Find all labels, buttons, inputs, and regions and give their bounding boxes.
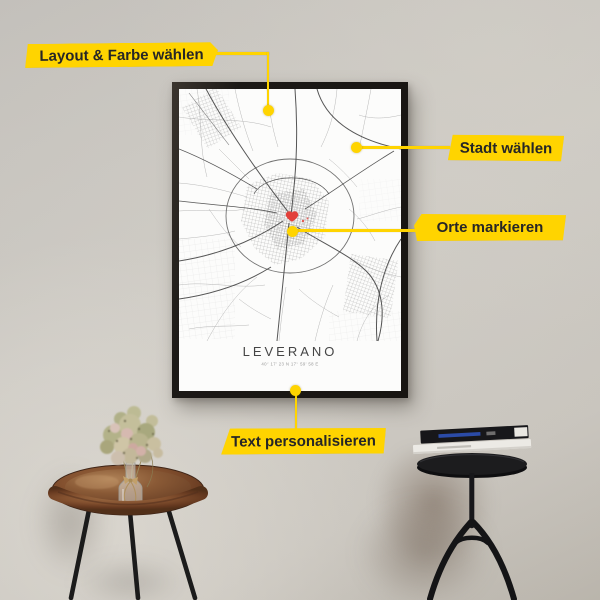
stool-legs	[430, 522, 514, 599]
callout-text-personalisieren[interactable]: Text personalisieren	[221, 427, 386, 454]
scene: LEVERANO 40° 17' 23 N 17° 59' 58 E	[0, 0, 600, 600]
callout-line-stadt	[356, 146, 450, 149]
poster-coordinates: 40° 17' 23 N 17° 59' 58 E	[210, 363, 370, 367]
callout-dot-orte	[287, 226, 298, 237]
map-poster: LEVERANO 40° 17' 23 N 17° 59' 58 E	[179, 89, 401, 391]
field-grid	[359, 179, 401, 221]
stool-seat	[417, 453, 527, 475]
poster-title: LEVERANO	[179, 344, 401, 359]
callout-line-text	[295, 391, 298, 430]
books	[412, 425, 531, 454]
callout-dot-layout	[263, 105, 274, 116]
black-book-spine-mark	[486, 431, 495, 435]
stool-column	[469, 473, 474, 525]
callout-stadt-waehlen[interactable]: Stadt wählen	[448, 135, 564, 162]
table-legs	[71, 505, 195, 598]
town-southeast	[343, 254, 399, 318]
side-table	[35, 395, 225, 600]
flower-bouquet	[100, 406, 163, 465]
callout-orte-markieren[interactable]: Orte markieren	[414, 214, 566, 241]
map-marker-dot	[307, 218, 309, 220]
callout-line-layout	[267, 52, 270, 110]
black-book-pages	[514, 427, 527, 437]
wood-highlight	[75, 475, 119, 489]
callout-dot-stadt	[351, 142, 362, 153]
callout-line-orte	[292, 229, 418, 232]
map-marker-dot	[302, 220, 304, 222]
poster-frame: LEVERANO 40° 17' 23 N 17° 59' 58 E	[172, 82, 408, 398]
callout-dot-text	[290, 385, 301, 396]
stool	[375, 415, 545, 600]
callout-layout-farbe[interactable]: Layout & Farbe wählen	[25, 42, 218, 68]
field-grid	[179, 239, 235, 339]
